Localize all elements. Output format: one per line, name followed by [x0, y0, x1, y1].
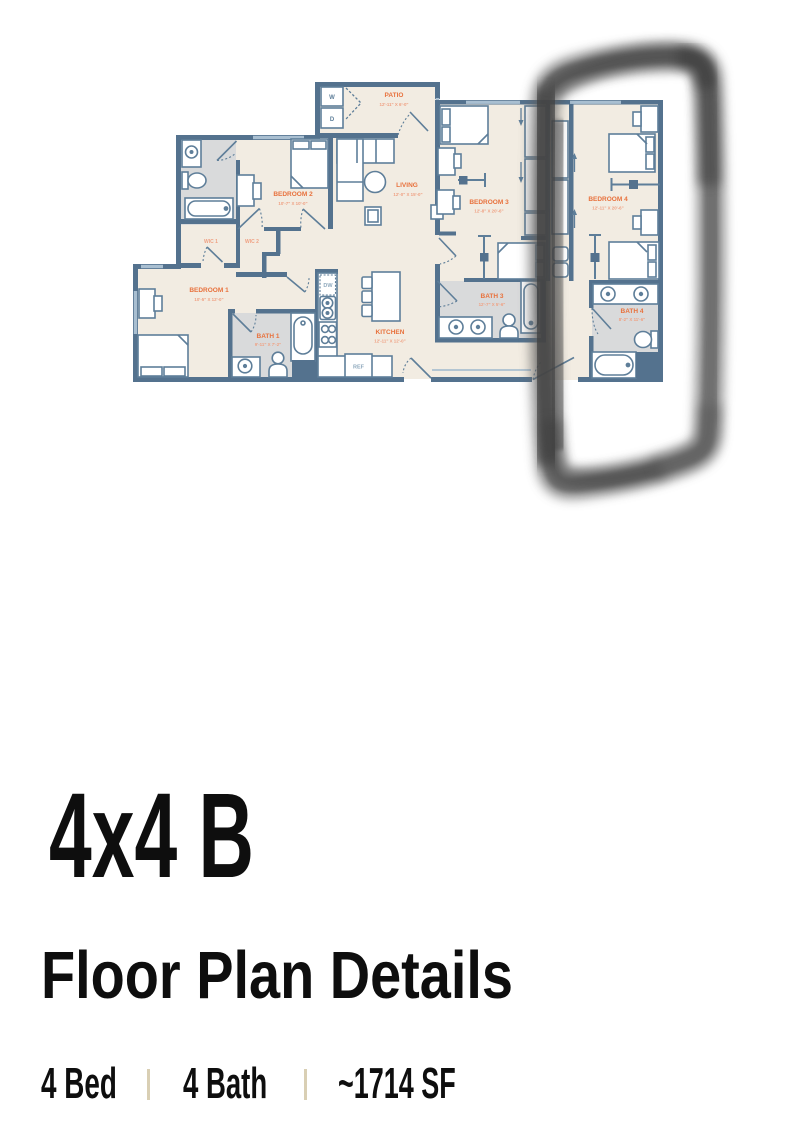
svg-text:PATIO: PATIO — [385, 92, 404, 99]
svg-text:12'-0" X 15'-0": 12'-0" X 15'-0" — [393, 192, 422, 197]
svg-text:BEDROOM 3: BEDROOM 3 — [469, 199, 509, 206]
svg-text:BATH 4: BATH 4 — [621, 308, 644, 315]
svg-text:10'-7" X 10'-0": 10'-7" X 10'-0" — [278, 201, 307, 206]
svg-text:KITCHEN: KITCHEN — [376, 329, 405, 336]
svg-text:BATH 3: BATH 3 — [481, 293, 504, 300]
svg-text:WIC 1: WIC 1 — [204, 239, 218, 245]
svg-text:8'-2" X 11'-6": 8'-2" X 11'-6" — [619, 317, 646, 322]
svg-text:BEDROOM 2: BEDROOM 2 — [273, 191, 313, 198]
svg-text:9'-11" X 7'-2": 9'-11" X 7'-2" — [255, 342, 282, 347]
svg-text:DW: DW — [323, 283, 333, 289]
svg-text:BEDROOM 1: BEDROOM 1 — [189, 287, 229, 294]
svg-text:WIC 2: WIC 2 — [245, 239, 259, 245]
svg-text:D: D — [330, 117, 335, 123]
svg-text:BEDROOM 4: BEDROOM 4 — [588, 196, 628, 203]
svg-text:BATH 1: BATH 1 — [257, 333, 280, 340]
svg-text:12'-11" X 12'-0": 12'-11" X 12'-0" — [374, 339, 405, 344]
svg-text:12'-11" X 20'-6": 12'-11" X 20'-6" — [592, 206, 623, 211]
svg-text:10'-5" X 12'-0": 10'-5" X 12'-0" — [194, 297, 223, 302]
svg-text:12'-11" X 6'-0": 12'-11" X 6'-0" — [380, 102, 409, 107]
svg-text:W: W — [329, 95, 335, 101]
svg-text:REF: REF — [353, 365, 365, 371]
svg-text:12'-8" X 20'-6": 12'-8" X 20'-6" — [474, 209, 503, 214]
svg-text:12'-7" X 5'-6": 12'-7" X 5'-6" — [479, 302, 506, 307]
svg-text:LIVING: LIVING — [396, 182, 418, 189]
